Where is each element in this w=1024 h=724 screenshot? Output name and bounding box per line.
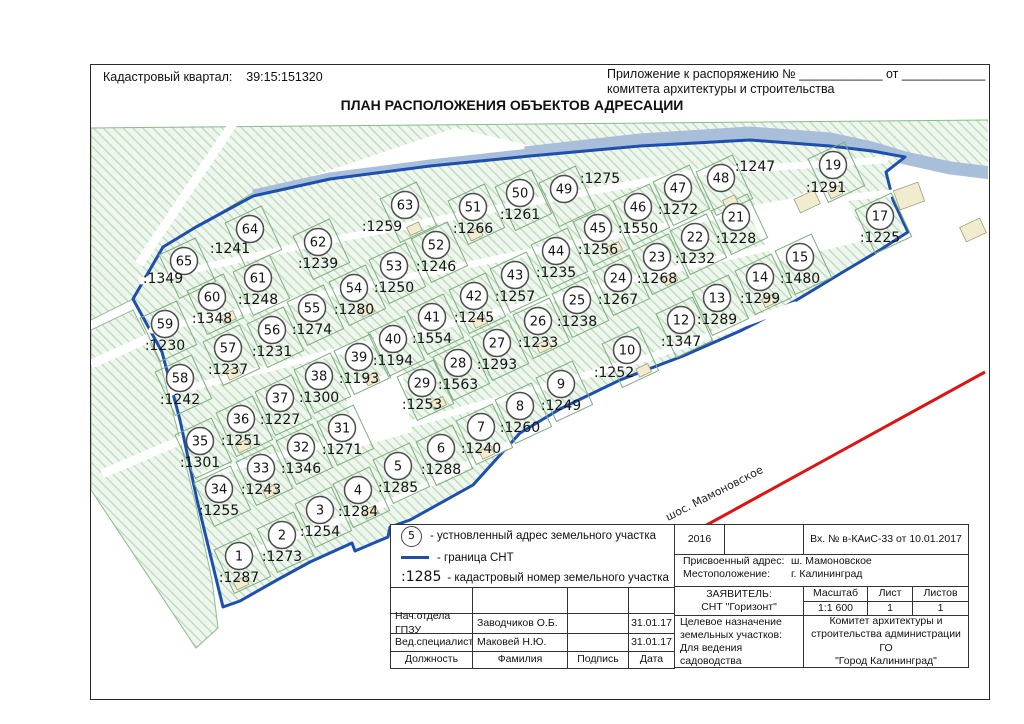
purpose-line2: земельных участков: <box>680 629 782 642</box>
stamp-empty-cell <box>628 587 675 614</box>
applicant-label: ЗАЯВИТЕЛЬ: <box>706 588 772 601</box>
stamp-header-date: Дата <box>628 651 675 669</box>
legend-item-address: 5 - устновленный адрес земельного участк… <box>401 526 656 547</box>
annex-line2: комитета архитектуры и строительства <box>607 82 985 97</box>
stamp-committee: Комитет архитектуры и строительства адми… <box>803 615 969 668</box>
stamp-header-position: Должность <box>390 651 473 669</box>
stamp-name-1: Заводчиков О.Б. <box>472 613 568 634</box>
assigned-address-label: Присвоенный адрес: <box>683 555 791 568</box>
sheet-value: 1 <box>867 601 913 616</box>
assigned-address-value: ш. Мамоновское <box>791 555 872 567</box>
page-title: ПЛАН РАСПОЛОЖЕНИЯ ОБЪЕКТОВ АДРЕСАЦИИ <box>0 97 1024 113</box>
location-label: Местоположение: <box>683 568 791 581</box>
stamp-signature-2 <box>567 633 629 652</box>
committee-line3: "Город Калининград" <box>835 655 937 668</box>
legend: 5 - устновленный адрес земельного участк… <box>390 524 675 588</box>
committee-line2: строительства администрации ГО <box>804 628 968 654</box>
applicant-value: СНТ "Горизонт" <box>701 601 777 614</box>
scale-value: 1:1 600 <box>803 601 868 616</box>
annex-line1: Приложение к распоряжению № ____________… <box>607 67 985 82</box>
legend-item-boundary: - граница СНТ <box>401 551 514 565</box>
legend-item-cadastral-text: - кадастровый номер земельного участка <box>447 571 669 585</box>
assigned-address-row: Присвоенный адрес:ш. Мамоновское <box>683 555 872 568</box>
committee-line1: Комитет архитектуры и <box>829 615 942 628</box>
legend-boundary-line <box>401 556 429 559</box>
stamp-position-1: Нач.отдела ГПЗУ <box>390 613 473 634</box>
legend-item-address-text: - устновленный адрес земельного участка <box>430 529 656 543</box>
legend-plot-circle: 5 <box>401 526 422 547</box>
stamp-header-signature: Подпись <box>567 651 629 669</box>
cadastral-plan-page: 1:12872:12733:12544:12845:12856:12887:12… <box>0 0 1024 724</box>
stamp-address-block: Присвоенный адрес:ш. Мамоновское Местопо… <box>674 554 969 587</box>
purpose-line3: Для ведения садоводства <box>680 642 803 668</box>
stamp-year: 2016 <box>674 524 725 555</box>
stamp-position-2: Вед.специалист <box>390 633 473 652</box>
cadastral-quarter: Кадастровый квартал: 39:15:151320 <box>103 70 323 85</box>
scale-header: Масштаб <box>803 586 868 602</box>
stamp-applicant: ЗАЯВИТЕЛЬ: СНТ "Горизонт" <box>674 586 804 616</box>
sheets-header: Листов <box>912 586 969 602</box>
sheet-header: Лист <box>867 586 913 602</box>
stamp-registration: Вх. № в-КАиС-33 от 10.01.2017 <box>803 524 969 555</box>
stamp-header-surname: Фамилия <box>472 651 568 669</box>
stamp-name-2: Маковей Н.Ю. <box>472 633 568 652</box>
annex-note: Приложение к распоряжению № ____________… <box>607 67 985 97</box>
stamp-empty-cell <box>472 587 568 614</box>
stamp-signature-1 <box>567 613 629 634</box>
purpose-line1: Целевое назначение <box>680 616 782 629</box>
legend-item-boundary-text: - граница СНТ <box>437 551 514 565</box>
cadastral-quarter-label: Кадастровый квартал: <box>103 70 232 84</box>
cadastral-quarter-value: 39:15:151320 <box>246 70 322 84</box>
legend-item-cadastral: :1285 - кадастровый номер земельного уча… <box>401 569 669 587</box>
stamp-purpose: Целевое назначение земельных участков: Д… <box>674 615 804 668</box>
location-row: Местоположение:г. Калининград <box>683 568 862 581</box>
location-value: г. Калининград <box>791 568 862 580</box>
legend-cadastral-number: :1285 <box>401 569 441 587</box>
stamp-empty-cell <box>724 524 804 555</box>
legend-plot-number: 5 <box>408 529 415 543</box>
stamp-date-2: 31.01.17 <box>628 633 675 652</box>
sheets-value: 1 <box>912 601 969 616</box>
stamp-empty-cell <box>567 587 629 614</box>
stamp-date-1: 31.01.17 <box>628 613 675 634</box>
